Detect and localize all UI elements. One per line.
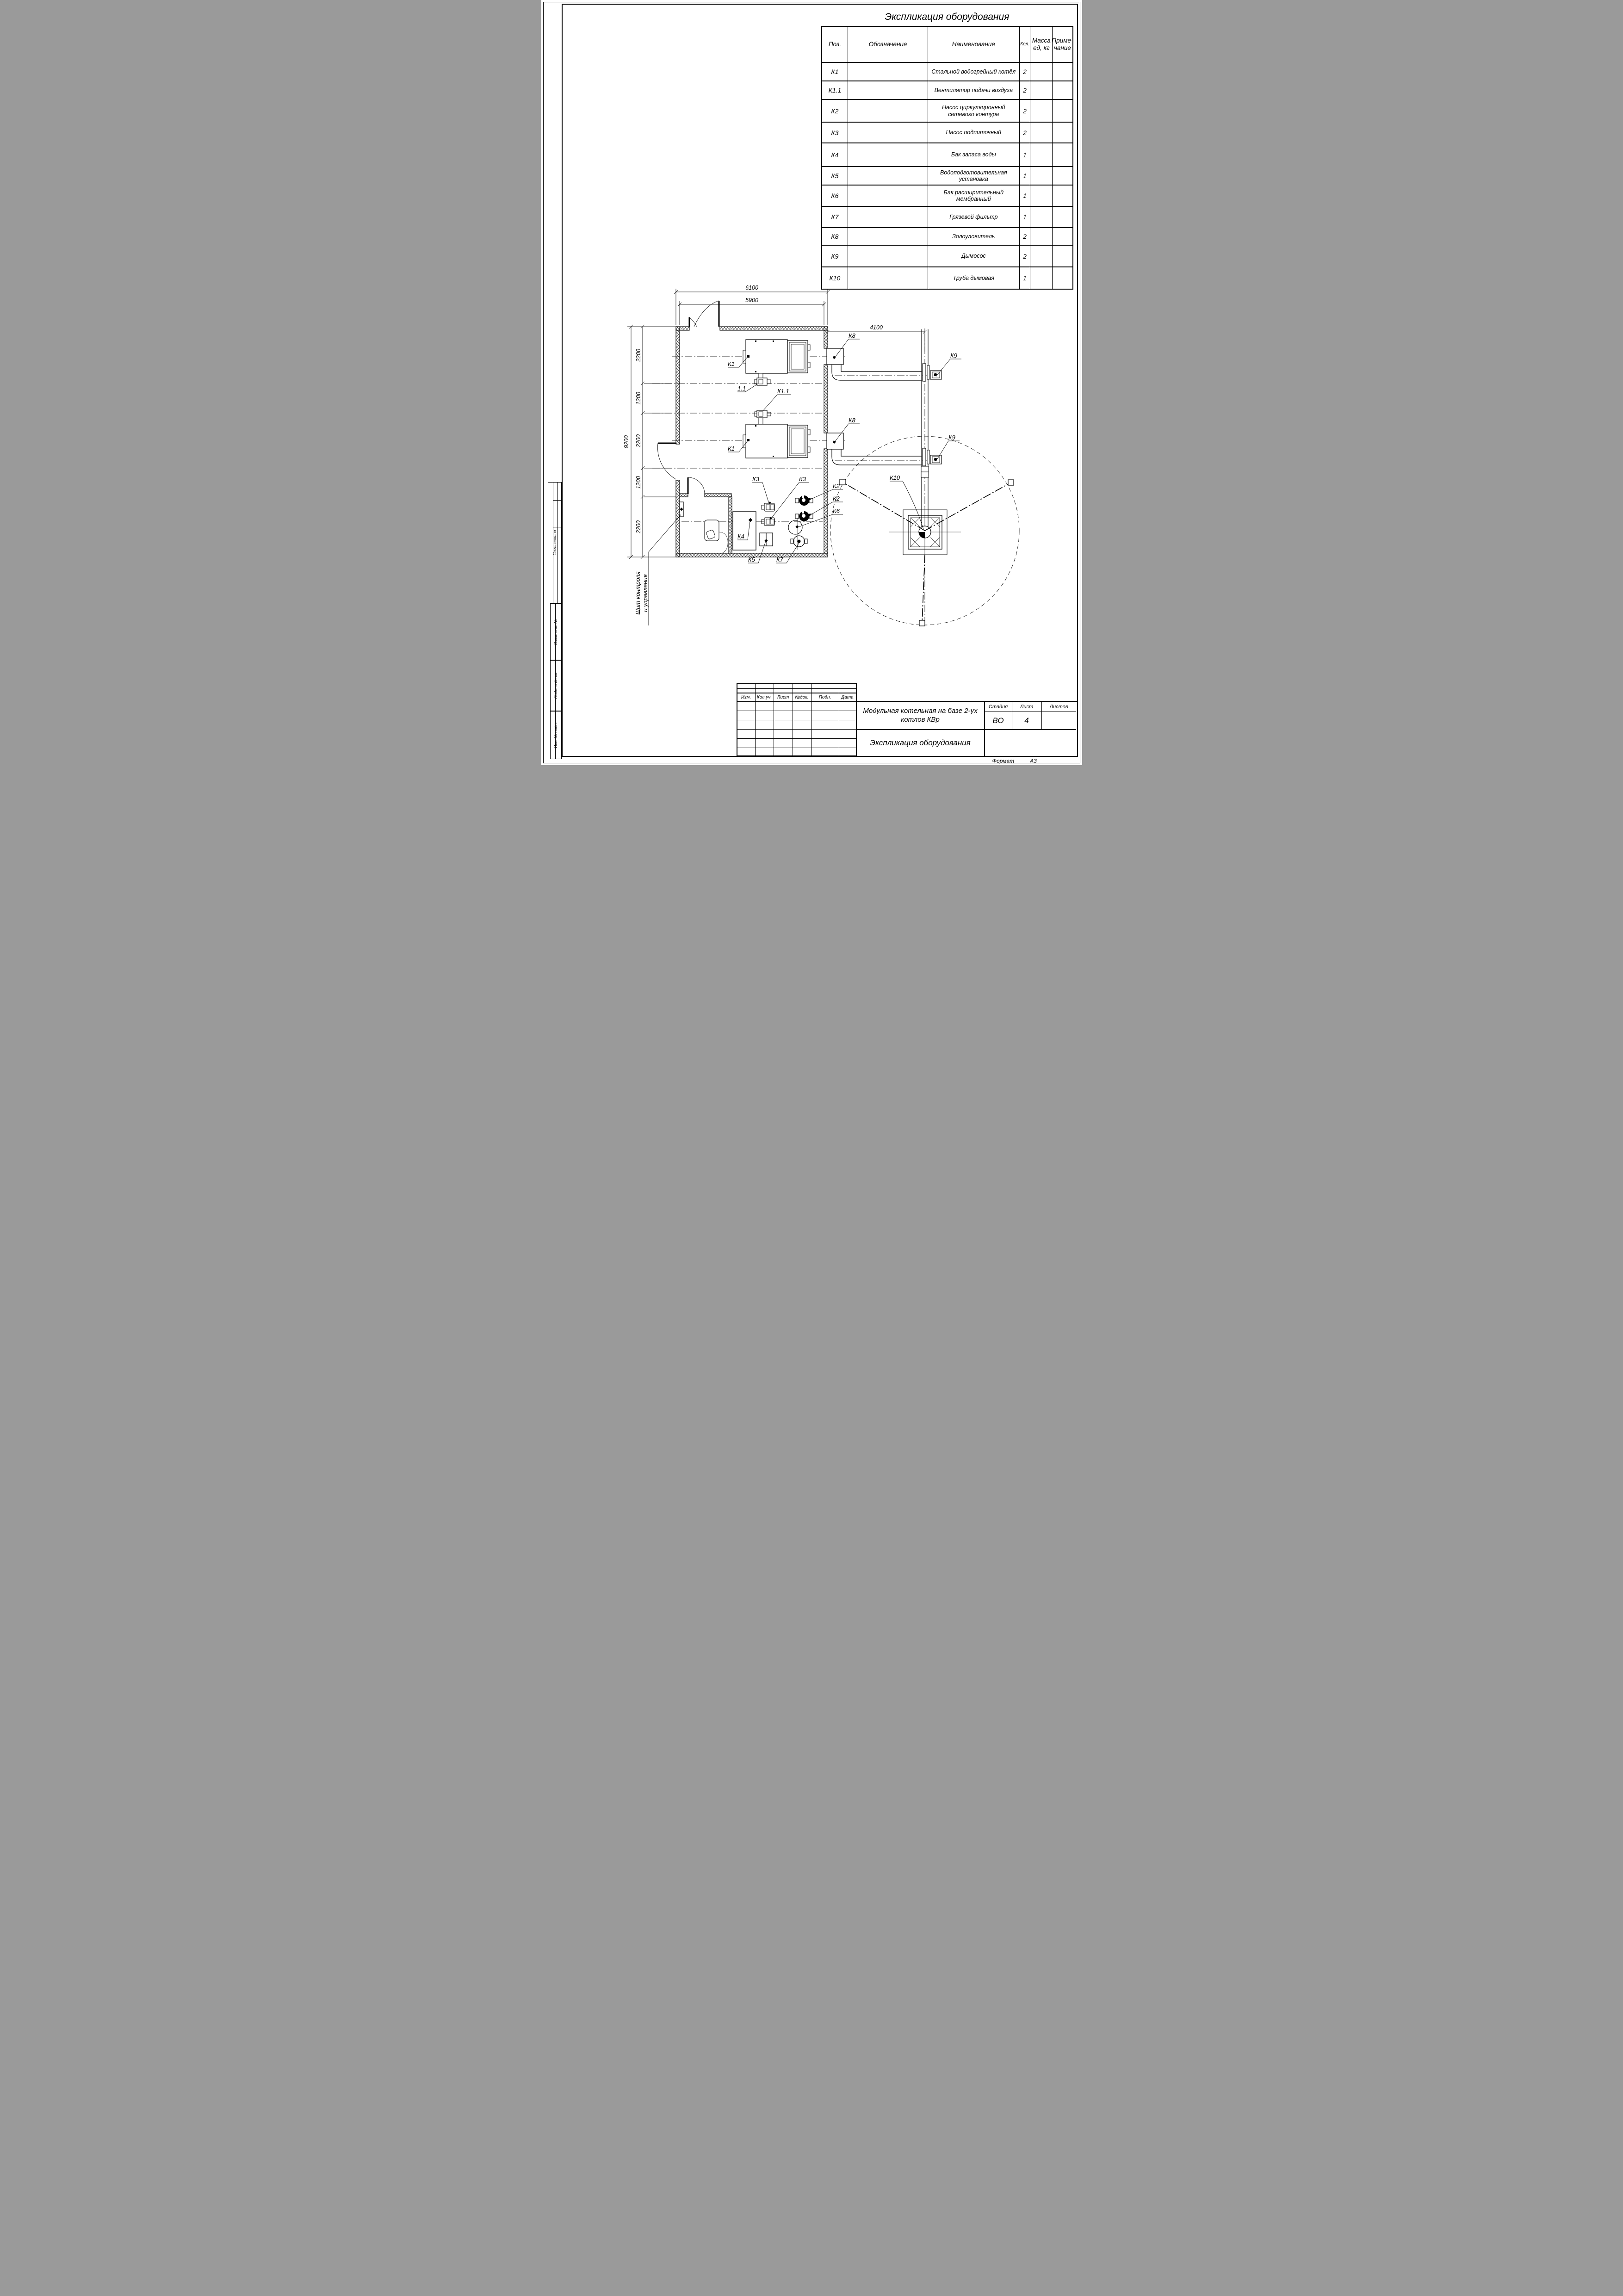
cell-pos: К3 [822, 123, 849, 142]
dim-seg-c: 2200 [635, 434, 642, 448]
label-control-panel-line2: и управления [642, 574, 649, 612]
cell-note [1053, 167, 1072, 185]
stamp-divider [555, 604, 556, 660]
label-k6: К6 [833, 507, 840, 514]
spec-row-k3: К3 Насос подпиточный 2 [822, 122, 1072, 142]
col-header-pos: Поз. [822, 27, 849, 62]
cell-qty: 2 [1020, 123, 1031, 142]
office-door [688, 477, 705, 494]
cell-pos: К9 [822, 246, 849, 266]
label-k5: К5 [748, 556, 756, 563]
cell-note [1053, 207, 1072, 227]
stamp-divider [558, 483, 558, 603]
format-note: Формат А3 [992, 758, 1071, 764]
spec-row-k2: К2 Насос циркуляционный сетевого контура… [822, 99, 1072, 122]
spec-row-k4: К4 Бак запаса воды 1 [822, 142, 1072, 166]
feed-pump-k3-bottom [762, 517, 774, 526]
rev-header-list: Лист [774, 693, 793, 702]
spec-title: Экспликация оборудования [821, 9, 1073, 26]
spec-row-k1-1: К1.1 Вентилятор подачи воздуха 2 [822, 80, 1072, 99]
col-header-note: Приме- чание [1053, 27, 1072, 62]
cell-mass [1030, 167, 1053, 185]
dim-seg-b: 1200 [635, 392, 642, 405]
cell-name: Насос циркуляционный сетевого контура [928, 100, 1020, 122]
rev-header-koluch: Кол.уч. [756, 693, 774, 702]
stamp-inv-podl: Инв. № подл. [550, 711, 562, 759]
spec-row-k1: К1 Стальной водогрейный котёл 2 [822, 62, 1072, 80]
sheet-number: 4 [1012, 712, 1042, 730]
cell-designation [848, 123, 928, 142]
cell-name: Грязевой фильтр [928, 207, 1020, 227]
cell-note [1053, 228, 1072, 245]
water-tank-k4 [733, 512, 756, 550]
dim-seg-e: 2200 [635, 520, 642, 534]
label-k1-bottom: К1 [728, 445, 735, 452]
water-treatment-k5 [760, 533, 773, 546]
spec-row-k8: К8 Золоуловитель 2 [822, 227, 1072, 245]
revision-grid: Изм. Кол.уч. Лист №док. Подп. Дата [737, 683, 857, 757]
cell-qty: 2 [1020, 100, 1031, 122]
spec-row-k9: К9 Дымосос 2 [822, 245, 1072, 266]
label-control-panel-line1: Щит контроля [634, 571, 641, 614]
spec-row-k6: К6 Бак расширительный мембранный 1 [822, 185, 1072, 206]
cell-designation [848, 267, 928, 289]
cell-pos: К1 [822, 63, 849, 80]
cell-name: Бак расширительный мембранный [928, 186, 1020, 206]
cell-mass [1030, 100, 1053, 122]
cell-qty: 2 [1020, 228, 1031, 245]
cell-designation [848, 207, 928, 227]
spec-row-k5: К5 Водоподготовительная установка 1 [822, 166, 1072, 185]
office-desk [705, 520, 728, 553]
cell-qty: 2 [1020, 81, 1031, 99]
boiler-2 [743, 424, 810, 458]
cell-pos: К5 [822, 167, 849, 185]
cell-pos: К7 [822, 207, 849, 227]
cell-qty: 1 [1020, 186, 1031, 206]
cell-designation [848, 81, 928, 99]
dim-seg-a: 2200 [635, 349, 642, 362]
cell-pos: К1.1 [822, 81, 849, 99]
col-header-mass: Масса ед, кг [1030, 27, 1053, 62]
rev-header-podp: Подп. [811, 693, 839, 702]
cell-pos: К8 [822, 228, 849, 245]
rev-header-data: Дата [839, 693, 856, 702]
label-k2-bottom: К2 [833, 495, 840, 502]
mud-filter-k7 [791, 536, 807, 547]
stamp-vzam-inv-label: Взам. инв. № [553, 619, 558, 645]
col-header-name: Наименование [928, 27, 1020, 62]
cell-name: Насос подпиточный [928, 123, 1020, 142]
cell-mass [1030, 228, 1053, 245]
network-pump-k2-top [795, 495, 813, 506]
smoke-exhauster-top [923, 364, 942, 381]
cell-note [1053, 267, 1072, 289]
side-door [657, 443, 676, 479]
label-k8-bottom: К8 [849, 417, 856, 424]
label-k3-left: К3 [752, 476, 760, 483]
spec-grid: Поз. Обозначение Наименование Кол. Масса… [821, 26, 1073, 290]
label-k8-top: К8 [849, 332, 856, 339]
cell-mass [1030, 207, 1053, 227]
equipment-specification: Экспликация оборудования Поз. Обозначени… [821, 9, 1073, 290]
col-header-designation: Обозначение [848, 27, 928, 62]
feed-pump-k3-top [762, 501, 774, 511]
stamp-divider [555, 661, 556, 711]
stamp-podp-data: Подп. и дата [550, 660, 562, 711]
label-k4: К4 [737, 533, 744, 540]
cell-note [1053, 123, 1072, 142]
dim-overall-depth: 9200 [623, 435, 630, 448]
cell-name: Бак запаса воды [928, 143, 1020, 166]
stamp-soglasovano: Согласовано [548, 482, 562, 603]
cell-name: Дымосос [928, 246, 1020, 266]
stamp-divider [553, 500, 561, 501]
label-k1-top: К1 [728, 360, 735, 367]
cell-pos: К10 [822, 267, 849, 289]
cell-pos: К4 [822, 143, 849, 166]
cell-designation [848, 63, 928, 80]
label-k1-1: К1.1 [777, 388, 789, 395]
label-k9-bottom: К9 [948, 434, 955, 441]
spec-row-k7: К7 Грязевой фильтр 1 [822, 206, 1072, 227]
dimension-texts: 6100 5900 4100 9200 2200 1200 2200 1200 … [623, 285, 883, 534]
cell-name: Вентилятор подачи воздуха [928, 81, 1020, 99]
document-title: Экспликация оборудования [857, 730, 985, 756]
cell-designation [848, 167, 928, 185]
cell-pos: К2 [822, 100, 849, 122]
cell-qty: 1 [1020, 143, 1031, 166]
stage-label: Стадия [985, 702, 1012, 712]
stage-value: ВО [985, 712, 1012, 730]
cell-designation [848, 143, 928, 166]
cell-note [1053, 81, 1072, 99]
air-fan-2 [755, 410, 771, 424]
spec-row-k10: К10 Труба дымовая 1 [822, 266, 1072, 289]
cell-note [1053, 143, 1072, 166]
rev-header-dok: №док. [793, 693, 811, 702]
cell-mass [1030, 143, 1053, 166]
cell-mass [1030, 186, 1053, 206]
dim-seg-d: 1200 [635, 476, 642, 489]
cell-qty: 1 [1020, 167, 1031, 185]
dim-inner-width: 5900 [745, 297, 758, 303]
cell-qty: 1 [1020, 267, 1031, 289]
cell-designation [848, 100, 928, 122]
label-k9-top: К9 [950, 352, 957, 359]
cell-mass [1030, 63, 1053, 80]
stamp-divider [555, 712, 556, 759]
cell-qty: 2 [1020, 63, 1031, 80]
label-k10: К10 [890, 474, 900, 481]
dim-overall-width: 6100 [745, 285, 758, 291]
cell-note [1053, 186, 1072, 206]
col-header-qty: Кол. [1020, 27, 1031, 62]
label-k2-top: К2 [833, 483, 840, 489]
cell-mass [1030, 267, 1053, 289]
cell-note [1053, 246, 1072, 266]
spec-header-row: Поз. Обозначение Наименование Кол. Масса… [822, 27, 1072, 62]
cell-designation [848, 228, 928, 245]
dim-chimney-offset: 4100 [870, 324, 883, 331]
control-panel [680, 502, 683, 517]
title-block: Модульная котельная на базе 2-ух котлов … [857, 701, 1078, 757]
cell-designation [848, 246, 928, 266]
cell-qty: 1 [1020, 207, 1031, 227]
entrance-door [689, 301, 719, 327]
cell-name: Труба дымовая [928, 267, 1020, 289]
sheet-label: Лист [1012, 702, 1042, 712]
cell-mass [1030, 123, 1053, 142]
label-k7: К7 [776, 556, 784, 563]
format-label: Формат [992, 758, 1015, 764]
network-pump-k2-bottom [795, 511, 813, 521]
cell-designation [848, 186, 928, 206]
cell-name: Золоуловитель [928, 228, 1020, 245]
callout-texts: К1 1.1 К1.1 К1 К8 К9 К8 К9 К10 К2 К2 К6 … [634, 332, 957, 615]
cell-mass [1030, 81, 1053, 99]
label-k3-right: К3 [799, 476, 806, 483]
stamp-inv-podl-label: Инв. № подл. [553, 722, 558, 748]
boiler-1 [743, 340, 810, 378]
format-value: А3 [1030, 758, 1037, 764]
cell-name: Стальной водогрейный котёл [928, 63, 1020, 80]
stamp-divider [553, 483, 553, 603]
cell-note [1053, 63, 1072, 80]
sheets-label: Листов [1042, 702, 1076, 712]
stamp-vzam-inv: Взам. инв. № [550, 603, 562, 660]
cell-mass [1030, 246, 1053, 266]
drawing-sheet: 6100 5900 4100 9200 2200 1200 2200 1200 … [541, 0, 1082, 765]
project-title: Модульная котельная на базе 2-ух котлов … [857, 702, 985, 730]
rev-header-izm: Изм. [737, 693, 756, 702]
expansion-tank-k6 [788, 518, 802, 550]
cell-note [1053, 100, 1072, 122]
label-fan-1-1: 1.1 [737, 385, 746, 392]
sheets-total [1042, 712, 1076, 730]
stamp-podp-data-label: Подп. и дата [553, 673, 558, 699]
stamp-divider [553, 527, 561, 527]
cell-qty: 2 [1020, 246, 1031, 266]
cell-name: Водоподготовительная установка [928, 167, 1020, 185]
cell-pos: К6 [822, 186, 849, 206]
